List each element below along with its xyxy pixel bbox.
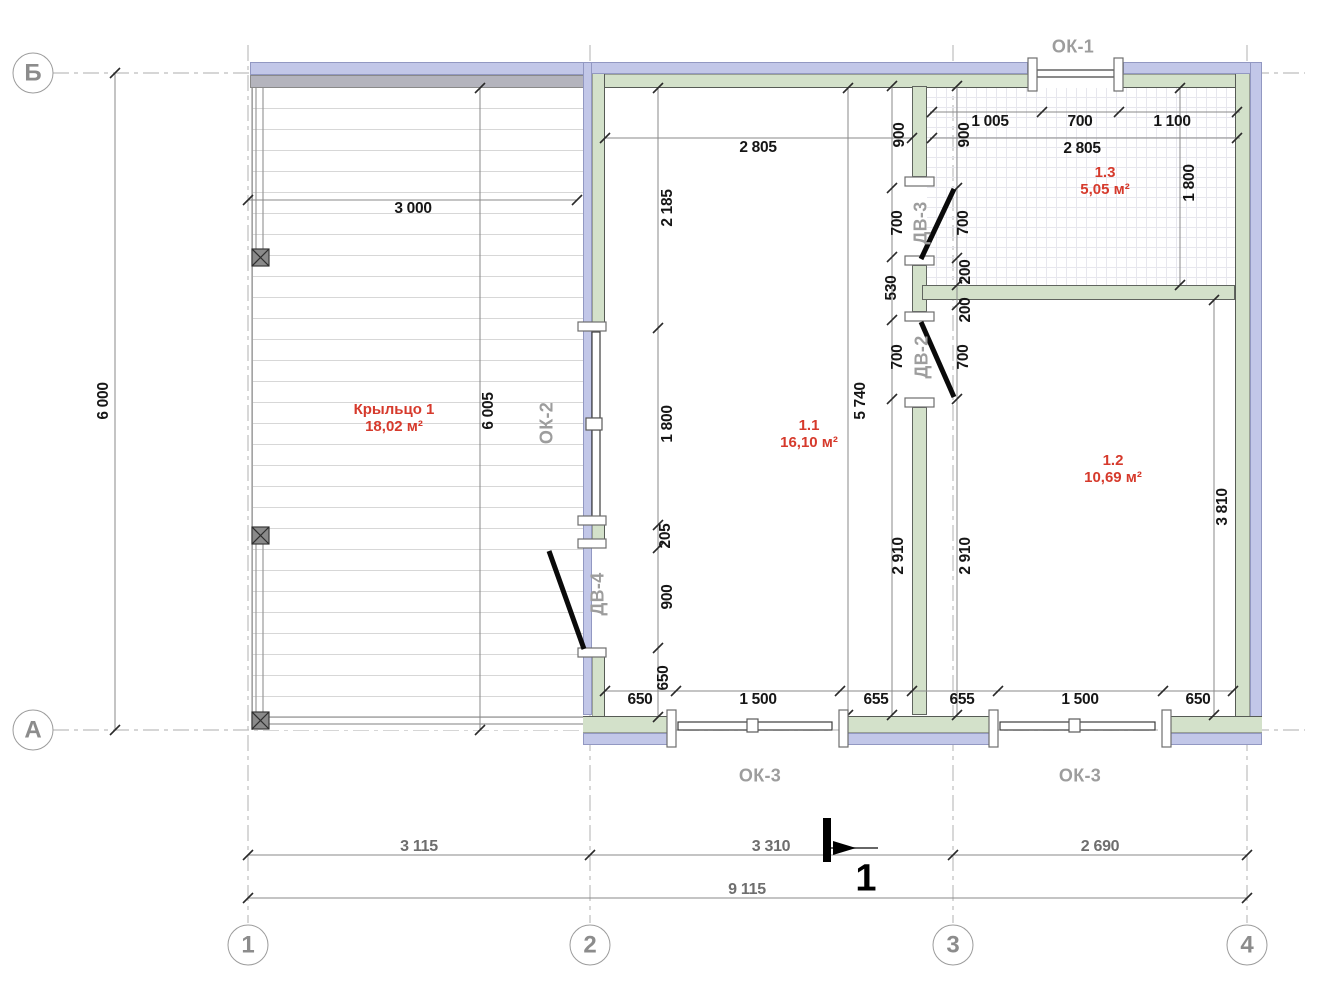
opening-tag-label: ОК-3 (1059, 766, 1101, 787)
room-number: 1.2 (1084, 452, 1142, 469)
wall-right-frame (1235, 74, 1250, 732)
dimension-label: 900 (956, 123, 974, 148)
dimension-label: 2 185 (659, 189, 677, 226)
dimension-label: 650 (655, 666, 673, 691)
dimension-label: 3 115 (400, 838, 438, 856)
room-number: 1.1 (780, 417, 838, 434)
partition-wall (912, 407, 927, 715)
wall-left-frame (592, 648, 605, 716)
dimension-label: 1 800 (659, 405, 677, 442)
dimension-label: 1 005 (971, 113, 1008, 131)
room-area: 18,02 м² (354, 418, 435, 435)
dimension-label: 700 (955, 345, 973, 370)
wall-bottom-insulation (1163, 733, 1262, 745)
room-label: 1.35,05 м² (1080, 164, 1129, 198)
dimension-label: 1 500 (1061, 691, 1098, 709)
wall-right-insulation (1250, 62, 1262, 745)
dimension-label: 2 690 (1081, 838, 1120, 856)
dimension-label: 650 (1186, 691, 1211, 709)
wall-left-frame (592, 74, 605, 330)
dimension-label: 655 (864, 691, 889, 709)
room-number: 1.3 (1080, 164, 1129, 181)
section-marker-label: 1 (855, 858, 876, 901)
room-number: Крыльцо 1 (354, 401, 435, 418)
wall-left-frame (592, 525, 605, 548)
wall-bottom-insulation (840, 733, 998, 745)
dimension-label: 205 (657, 524, 675, 549)
dimension-label: 900 (659, 585, 677, 610)
opening-tag-label: ОК-3 (739, 766, 781, 787)
porch-wall-insulation (250, 62, 590, 75)
dimension-label: 2 910 (890, 537, 908, 574)
grid-bubble: 3 (933, 925, 974, 966)
dimension-label: 3 310 (752, 838, 791, 856)
dimension-label: 5 740 (852, 382, 870, 419)
wall-bottom-frame (1163, 716, 1262, 733)
wall-bottom-frame (583, 716, 676, 733)
dimension-label: 9 115 (728, 881, 766, 899)
grid-bubble: 2 (570, 925, 611, 966)
dimension-label: 700 (889, 345, 907, 370)
dimension-label: 2 910 (957, 537, 975, 574)
room-area: 10,69 м² (1084, 469, 1142, 486)
dimension-label: 700 (889, 211, 907, 236)
wall-bottom-insulation (583, 733, 676, 745)
opening-tag-label: ДВ-3 (911, 201, 932, 244)
opening-tag-label: ДВ-2 (912, 335, 933, 378)
wall-top-insulation (1123, 62, 1262, 74)
opening-tag-label: ДВ-4 (588, 572, 609, 615)
porch-wall (250, 75, 590, 88)
grid-bubble: 4 (1227, 925, 1268, 966)
opening-tag-label: ОК-1 (1052, 37, 1094, 58)
wall-left-insulation (583, 62, 592, 715)
dimension-label: 3 810 (1214, 488, 1232, 525)
dimension-label: 2 805 (739, 139, 776, 157)
room-label: Крыльцо 118,02 м² (354, 401, 435, 435)
grid-bubble: Б (13, 53, 54, 94)
dimension-label: 1 500 (739, 691, 776, 709)
dimension-label: 655 (950, 691, 975, 709)
grid-bubble: 1 (228, 925, 269, 966)
room-label: 1.116,10 м² (780, 417, 838, 451)
dimension-label: 6 005 (480, 392, 498, 429)
room-area: 5,05 м² (1080, 181, 1129, 198)
wall-top-frame (583, 74, 1028, 88)
room-label: 1.210,69 м² (1084, 452, 1142, 486)
wall-top-insulation (583, 62, 1028, 74)
dimension-label: 700 (1068, 113, 1093, 131)
dimension-label: 700 (955, 211, 973, 236)
dimension-label: 6 000 (95, 382, 113, 419)
dimension-label: 530 (883, 276, 901, 301)
wall-bottom-frame (840, 716, 998, 733)
dimension-label: 200 (957, 260, 975, 285)
room-area: 16,10 м² (780, 434, 838, 451)
dimension-label: 3 000 (394, 200, 431, 218)
opening-tag-label: ОК-2 (537, 402, 558, 444)
dimension-label: 1 800 (1181, 164, 1199, 201)
grid-bubble: А (13, 710, 54, 751)
dimension-label: 1 100 (1153, 113, 1190, 131)
dimension-label: 650 (628, 691, 653, 709)
dimension-label: 900 (891, 123, 909, 148)
partition-wall (912, 86, 927, 177)
dimension-label: 2 805 (1063, 140, 1100, 158)
floor-plan: 3 0002 8051 0057001 1002 8056501 5006556… (0, 0, 1327, 989)
dimension-label: 200 (957, 298, 975, 323)
